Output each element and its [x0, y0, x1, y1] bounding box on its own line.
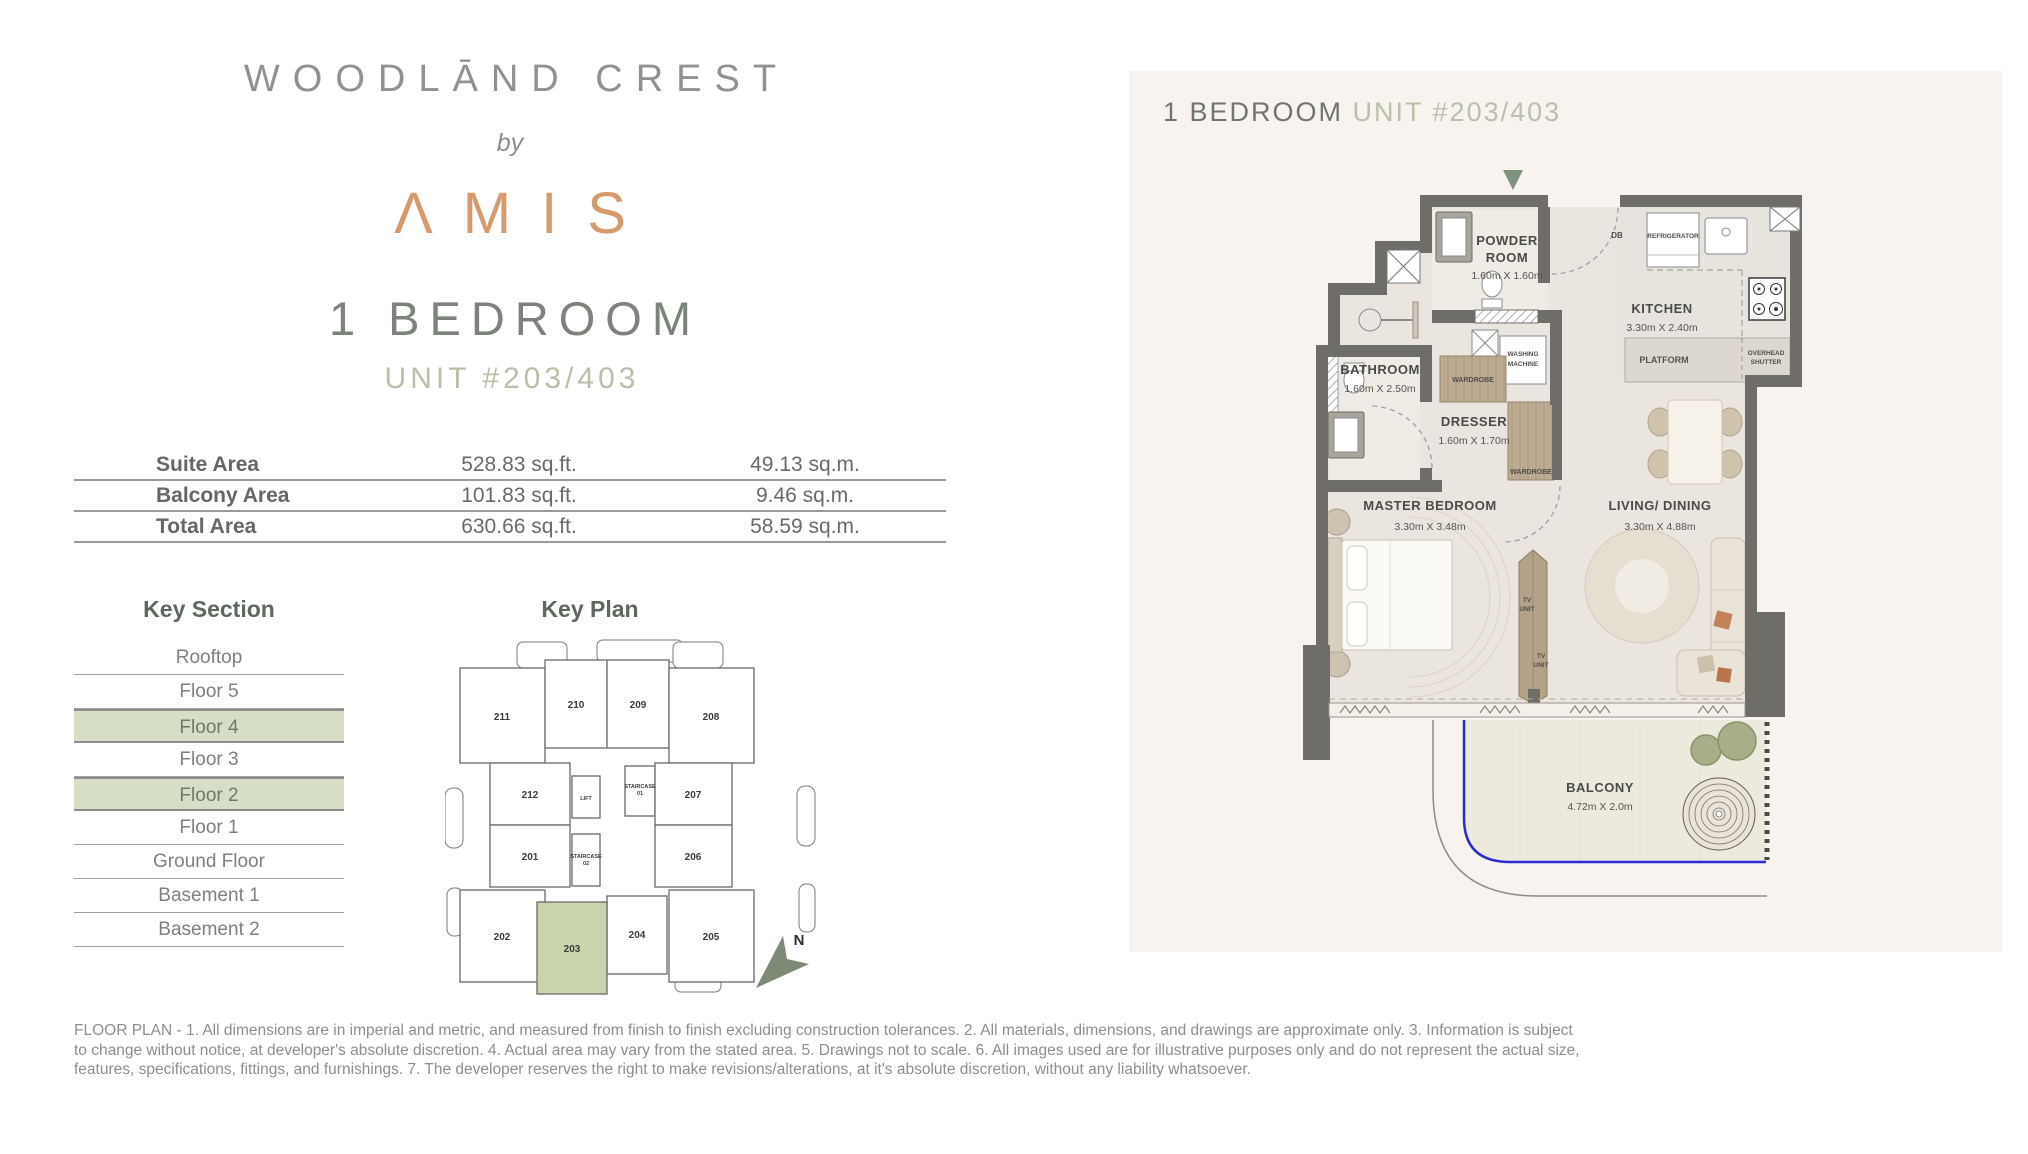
svg-text:N: N: [794, 932, 805, 949]
refrigerator: [1647, 213, 1699, 267]
area-table: Suite Area 528.83 sq.ft. 49.13 sq.m. Bal…: [74, 450, 946, 543]
woven-rug: [1683, 778, 1755, 850]
svg-text:3.30m X 4.88m: 3.30m X 4.88m: [1624, 521, 1695, 533]
svg-text:SHUTTER: SHUTTER: [1751, 359, 1782, 366]
svg-text:TV: TV: [1537, 653, 1546, 660]
floor-row-basement-2: Basement 2: [74, 913, 344, 947]
area-imperial: 630.66 sq.ft.: [374, 515, 664, 539]
svg-text:WARDROBE: WARDROBE: [1452, 377, 1494, 384]
floorplan-header: 1 BEDROOM UNIT #203/403: [1163, 97, 1561, 128]
svg-text:OVERHEAD: OVERHEAD: [1748, 350, 1785, 357]
key-section: Key Section Rooftop Floor 5 Floor 4 Floo…: [74, 596, 344, 947]
key-plan-drawing: 211 210 209 208 212 LIFT STAIRCASE 01 20…: [445, 638, 835, 998]
keyplan-units: [460, 660, 754, 994]
svg-text:4.72m X 2.0m: 4.72m X 2.0m: [1567, 801, 1633, 813]
svg-text:TV: TV: [1523, 597, 1532, 604]
floor-row-1: Floor 1: [74, 811, 344, 845]
by-word: by: [74, 129, 946, 158]
north-compass-icon: N: [756, 932, 809, 988]
key-plan-title: Key Plan: [455, 596, 725, 623]
svg-text:212: 212: [522, 790, 539, 801]
svg-text:UNIT: UNIT: [1519, 606, 1534, 613]
disclaimer-text: FLOOR PLAN - 1. All dimensions are in im…: [74, 1021, 1614, 1080]
svg-text:205: 205: [703, 932, 720, 943]
svg-text:WASHING: WASHING: [1507, 351, 1538, 358]
table-row: Balcony Area 101.83 sq.ft. 9.46 sq.m.: [74, 481, 946, 512]
svg-text:LIVING/ DINING: LIVING/ DINING: [1608, 498, 1711, 513]
plant-icon: [1691, 735, 1721, 765]
disclaimer-line-3: features, specifications, fittings, and …: [74, 1060, 1614, 1080]
floor-row-basement-1: Basement 1: [74, 879, 344, 913]
svg-text:208: 208: [703, 712, 720, 723]
svg-text:MACHINE: MACHINE: [1508, 361, 1539, 368]
area-metric: 49.13 sq.m.: [664, 453, 946, 477]
unit-type-title: 1 BEDROOM: [74, 291, 946, 346]
floor-row-2-highlighted: Floor 2: [74, 777, 344, 811]
svg-text:201: 201: [522, 852, 539, 863]
svg-text:211: 211: [494, 712, 511, 723]
floor-list: Rooftop Floor 5 Floor 4 Floor 3 Floor 2 …: [74, 641, 344, 947]
svg-text:202: 202: [494, 932, 511, 943]
floorplan-header-type: 1 BEDROOM: [1163, 97, 1353, 127]
floor-row-rooftop: Rooftop: [74, 641, 344, 675]
floor-row-ground: Ground Floor: [74, 845, 344, 879]
area-label: Total Area: [74, 515, 374, 539]
disclaimer-line-1: FLOOR PLAN - 1. All dimensions are in im…: [74, 1021, 1614, 1041]
stove: [1749, 278, 1785, 320]
svg-text:01: 01: [637, 791, 643, 797]
svg-text:209: 209: [630, 700, 647, 711]
svg-text:REFRIGERATOR: REFRIGERATOR: [1647, 233, 1699, 240]
vanity-hatch-wall: [1475, 310, 1538, 323]
svg-text:UNIT: UNIT: [1533, 662, 1548, 669]
svg-text:PLATFORM: PLATFORM: [1639, 355, 1688, 365]
living-rug: [1585, 529, 1699, 643]
svg-text:207: 207: [685, 790, 702, 801]
svg-text:3.30m X 3.48m: 3.30m X 3.48m: [1394, 521, 1465, 533]
svg-text:3.30m X 2.40m: 3.30m X 2.40m: [1626, 322, 1697, 334]
table-row: Suite Area 528.83 sq.ft. 49.13 sq.m.: [74, 450, 946, 481]
svg-text:1.60m X 1.70m: 1.60m X 1.70m: [1438, 435, 1509, 447]
area-metric: 9.46 sq.m.: [664, 484, 946, 508]
svg-text:210: 210: [568, 700, 585, 711]
entrance-arrow-icon: [1503, 170, 1523, 190]
svg-text:LIFT: LIFT: [580, 796, 592, 802]
tv-unit-partition: TV UNIT TV UNIT: [1519, 550, 1549, 704]
unit-number-title: UNIT #203/403: [74, 362, 946, 396]
svg-text:MASTER BEDROOM: MASTER BEDROOM: [1363, 498, 1496, 513]
floor-row-3: Floor 3: [74, 743, 344, 777]
floor-row-5: Floor 5: [74, 675, 344, 709]
svg-text:206: 206: [685, 852, 702, 863]
svg-text:ROOM: ROOM: [1486, 250, 1528, 265]
brand-block: WOODLĀND CREST by ΛMIS 1 BEDROOM UNIT #2…: [74, 58, 946, 396]
svg-text:POWDER: POWDER: [1476, 233, 1538, 248]
floorplan-header-unit: UNIT #203/403: [1353, 97, 1562, 127]
area-label: Suite Area: [74, 453, 374, 477]
svg-text:204: 204: [629, 930, 646, 941]
floorplan-panel: 1 BEDROOM UNIT #203/403: [1129, 71, 2002, 952]
plant-icon: [1718, 722, 1756, 760]
svg-text:DB: DB: [1611, 231, 1623, 240]
developer-logo: ΛMIS: [74, 180, 946, 247]
svg-text:STAIRCASE: STAIRCASE: [570, 854, 602, 860]
brochure-page: WOODLĀND CREST by ΛMIS 1 BEDROOM UNIT #2…: [0, 0, 2028, 1154]
area-label: Balcony Area: [74, 484, 374, 508]
area-metric: 58.59 sq.m.: [664, 515, 946, 539]
floor-row-4-highlighted: Floor 4: [74, 709, 344, 743]
svg-text:WARDROBE: WARDROBE: [1510, 469, 1552, 476]
svg-text:02: 02: [583, 861, 589, 867]
svg-text:STAIRCASE: STAIRCASE: [624, 784, 656, 790]
svg-text:DRESSER: DRESSER: [1441, 414, 1507, 429]
svg-text:BALCONY: BALCONY: [1566, 780, 1634, 795]
disclaimer-line-2: to change without notice, at developer's…: [74, 1041, 1614, 1061]
key-section-title: Key Section: [74, 596, 344, 623]
svg-text:KITCHEN: KITCHEN: [1631, 301, 1692, 316]
svg-text:203: 203: [564, 944, 581, 955]
area-imperial: 528.83 sq.ft.: [374, 453, 664, 477]
project-title: WOODLĀND CREST: [74, 58, 946, 101]
svg-text:1.60m X 2.50m: 1.60m X 2.50m: [1344, 383, 1415, 395]
table-row: Total Area 630.66 sq.ft. 58.59 sq.m.: [74, 512, 946, 543]
area-imperial: 101.83 sq.ft.: [374, 484, 664, 508]
svg-text:BATHROOM: BATHROOM: [1340, 362, 1420, 377]
svg-text:1.60m X 1.60m: 1.60m X 1.60m: [1471, 270, 1542, 282]
floorplan-drawing: TV UNIT TV UNIT REFRIGERATOR: [1270, 150, 1830, 920]
